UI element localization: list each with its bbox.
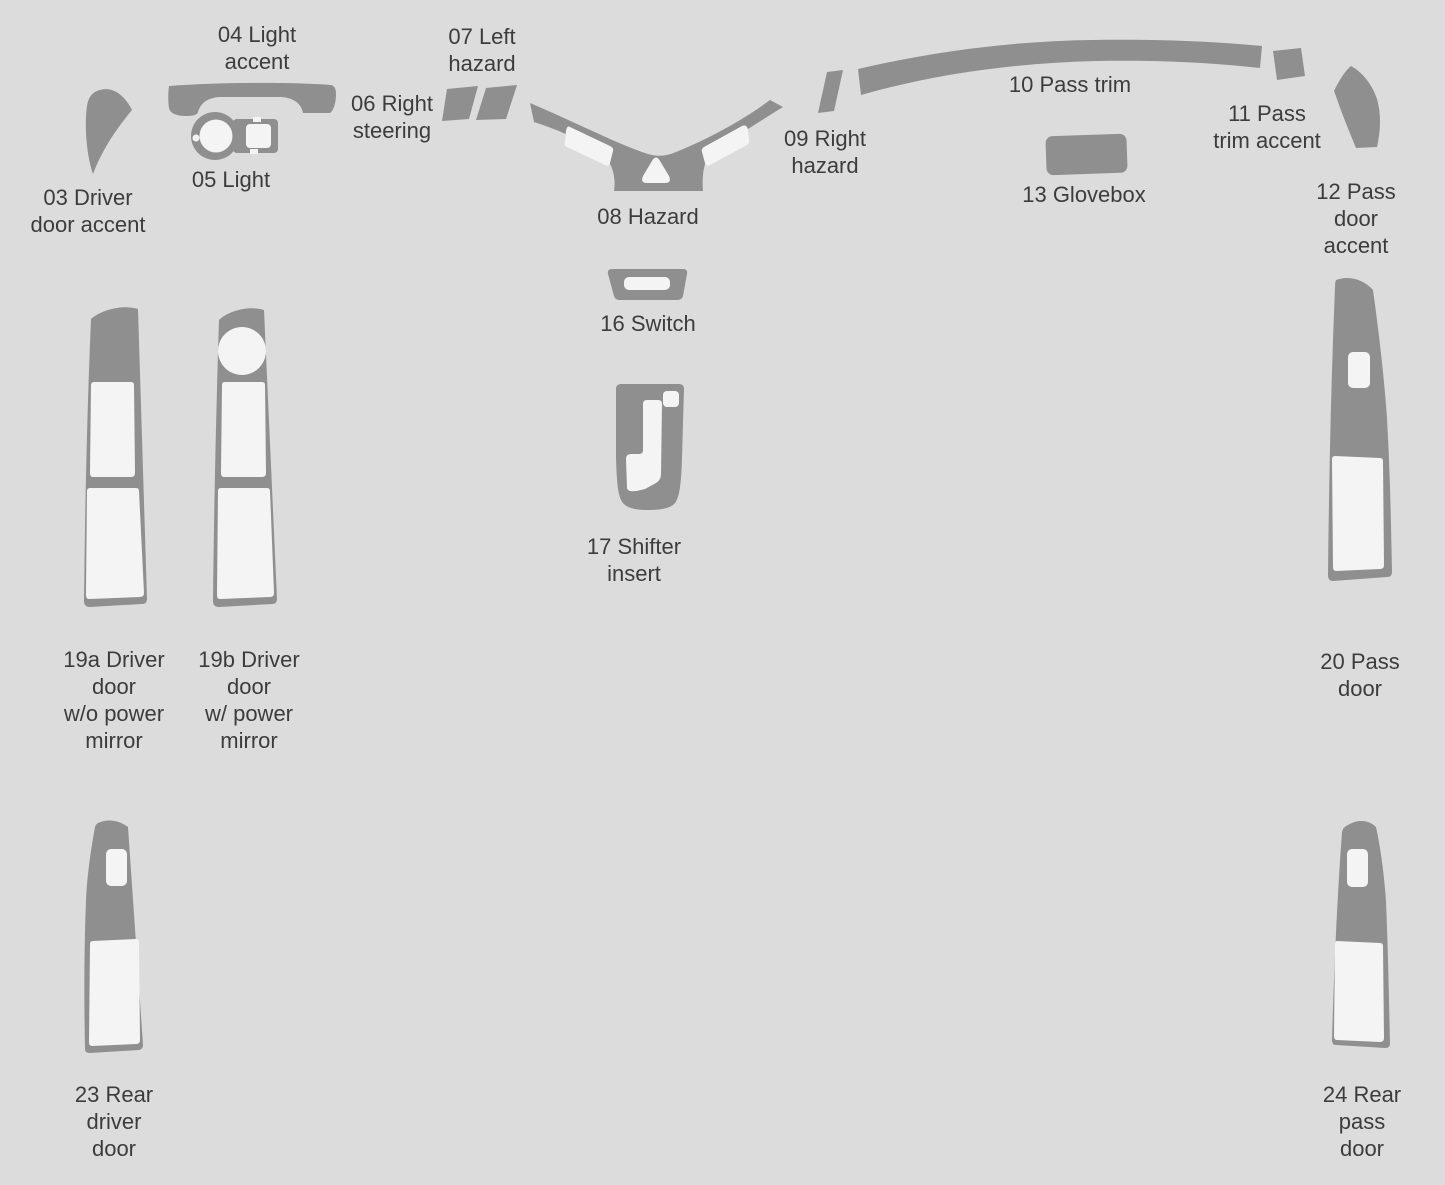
part-11-outline	[1273, 48, 1305, 80]
dash-kit-diagram: 03 Driver door accent 04 Light accent 05…	[0, 0, 1445, 1185]
part-24-rear-pass-door-shape	[1332, 821, 1390, 1048]
part-05-hole-cutout	[193, 135, 200, 142]
part-05-light-shape	[191, 112, 278, 160]
part-03-driver-door-accent-shape	[86, 89, 132, 174]
part-19b-upper-window-cutout	[221, 382, 266, 477]
part-20-switch-cutout	[1348, 352, 1370, 388]
part-17-button-cutout	[663, 391, 679, 407]
part-10-outline	[858, 40, 1262, 95]
part-20-pass-door-shape	[1328, 278, 1392, 581]
part-23-rear-driver-door-shape	[84, 820, 143, 1053]
part-19b-driver-door-shape	[213, 308, 277, 607]
part-19b-lower-window-cutout	[217, 488, 274, 599]
part-13-glovebox-shape	[1045, 134, 1127, 176]
part-06-right-steering-shape	[442, 86, 478, 121]
part-19b-mirror-switch-cutout	[218, 327, 266, 375]
part-11-pass-trim-accent-shape	[1273, 48, 1305, 80]
part-20-window-cutout	[1332, 456, 1384, 571]
part-16-slot-cutout	[624, 277, 670, 290]
part-07-left-hazard-shape	[476, 85, 517, 120]
part-12-outline	[1334, 66, 1380, 148]
part-23-window-cutout	[89, 939, 140, 1046]
part-09-right-hazard-shape	[818, 70, 843, 113]
part-12-pass-door-accent-shape	[1334, 66, 1380, 148]
part-17-shifter-insert-shape	[616, 384, 684, 510]
part-08-hazard-shape	[530, 100, 783, 191]
part-13-outline	[1045, 134, 1127, 176]
part-24-window-cutout	[1334, 941, 1384, 1042]
part-05-bottom-notch	[250, 149, 258, 154]
part-19a-driver-door-shape	[84, 307, 147, 607]
part-05-switch-cutout	[246, 124, 271, 148]
part-10-pass-trim-shape	[858, 40, 1262, 95]
part-23-switch-cutout	[106, 849, 127, 886]
part-19a-upper-window-cutout	[90, 382, 135, 477]
part-03-outline	[86, 89, 132, 174]
part-05-top-notch	[253, 117, 261, 122]
part-04-outline	[168, 83, 336, 116]
part-09-outline	[818, 70, 843, 113]
part-19a-lower-window-cutout	[86, 488, 144, 599]
parts-layer	[0, 0, 1445, 1185]
part-04-light-accent-shape	[168, 83, 336, 116]
part-07-outline	[476, 85, 517, 120]
part-06-outline	[442, 86, 478, 121]
part-24-switch-cutout	[1347, 849, 1368, 887]
part-16-switch-shape	[608, 269, 687, 300]
part-05-dial-cutout	[200, 120, 233, 153]
